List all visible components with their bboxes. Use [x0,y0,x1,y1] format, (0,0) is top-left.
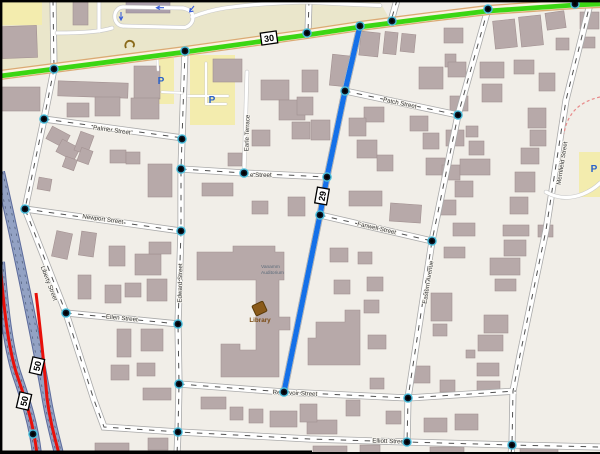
svg-text:Library: Library [249,317,271,324]
svg-text:P: P [209,95,216,106]
svg-text:Auditorium: Auditorium [261,270,284,276]
svg-text:Vanamm: Vanamm [261,264,280,270]
svg-text:e Street: e Street [250,172,272,179]
svg-text:P: P [158,76,165,87]
svg-text:29: 29 [317,190,329,202]
svg-text:Edward Street: Edward Street [177,263,185,303]
svg-text:Earle Terrace: Earle Terrace [243,114,251,151]
svg-text:P: P [591,164,598,175]
svg-text:Elliott Street: Elliott Street [372,438,406,446]
svg-text:30: 30 [263,33,274,44]
